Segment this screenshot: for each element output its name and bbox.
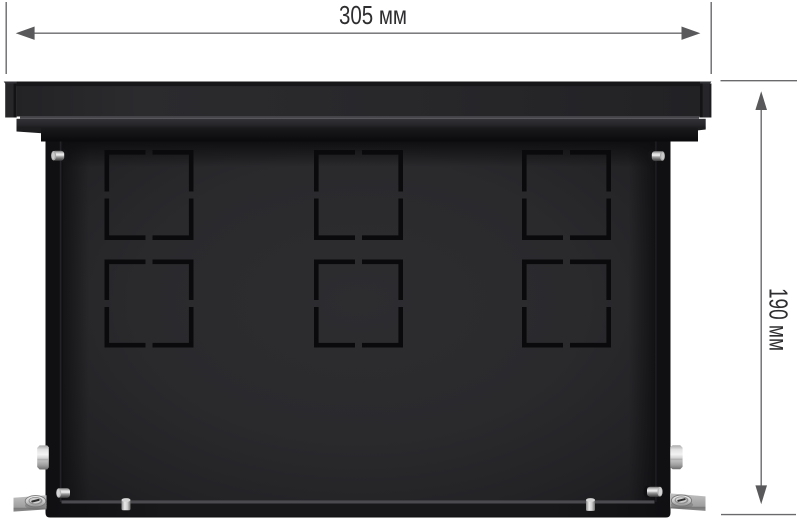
svg-text:190 мм: 190 мм [764,288,794,351]
svg-text:305 мм: 305 мм [339,0,407,30]
